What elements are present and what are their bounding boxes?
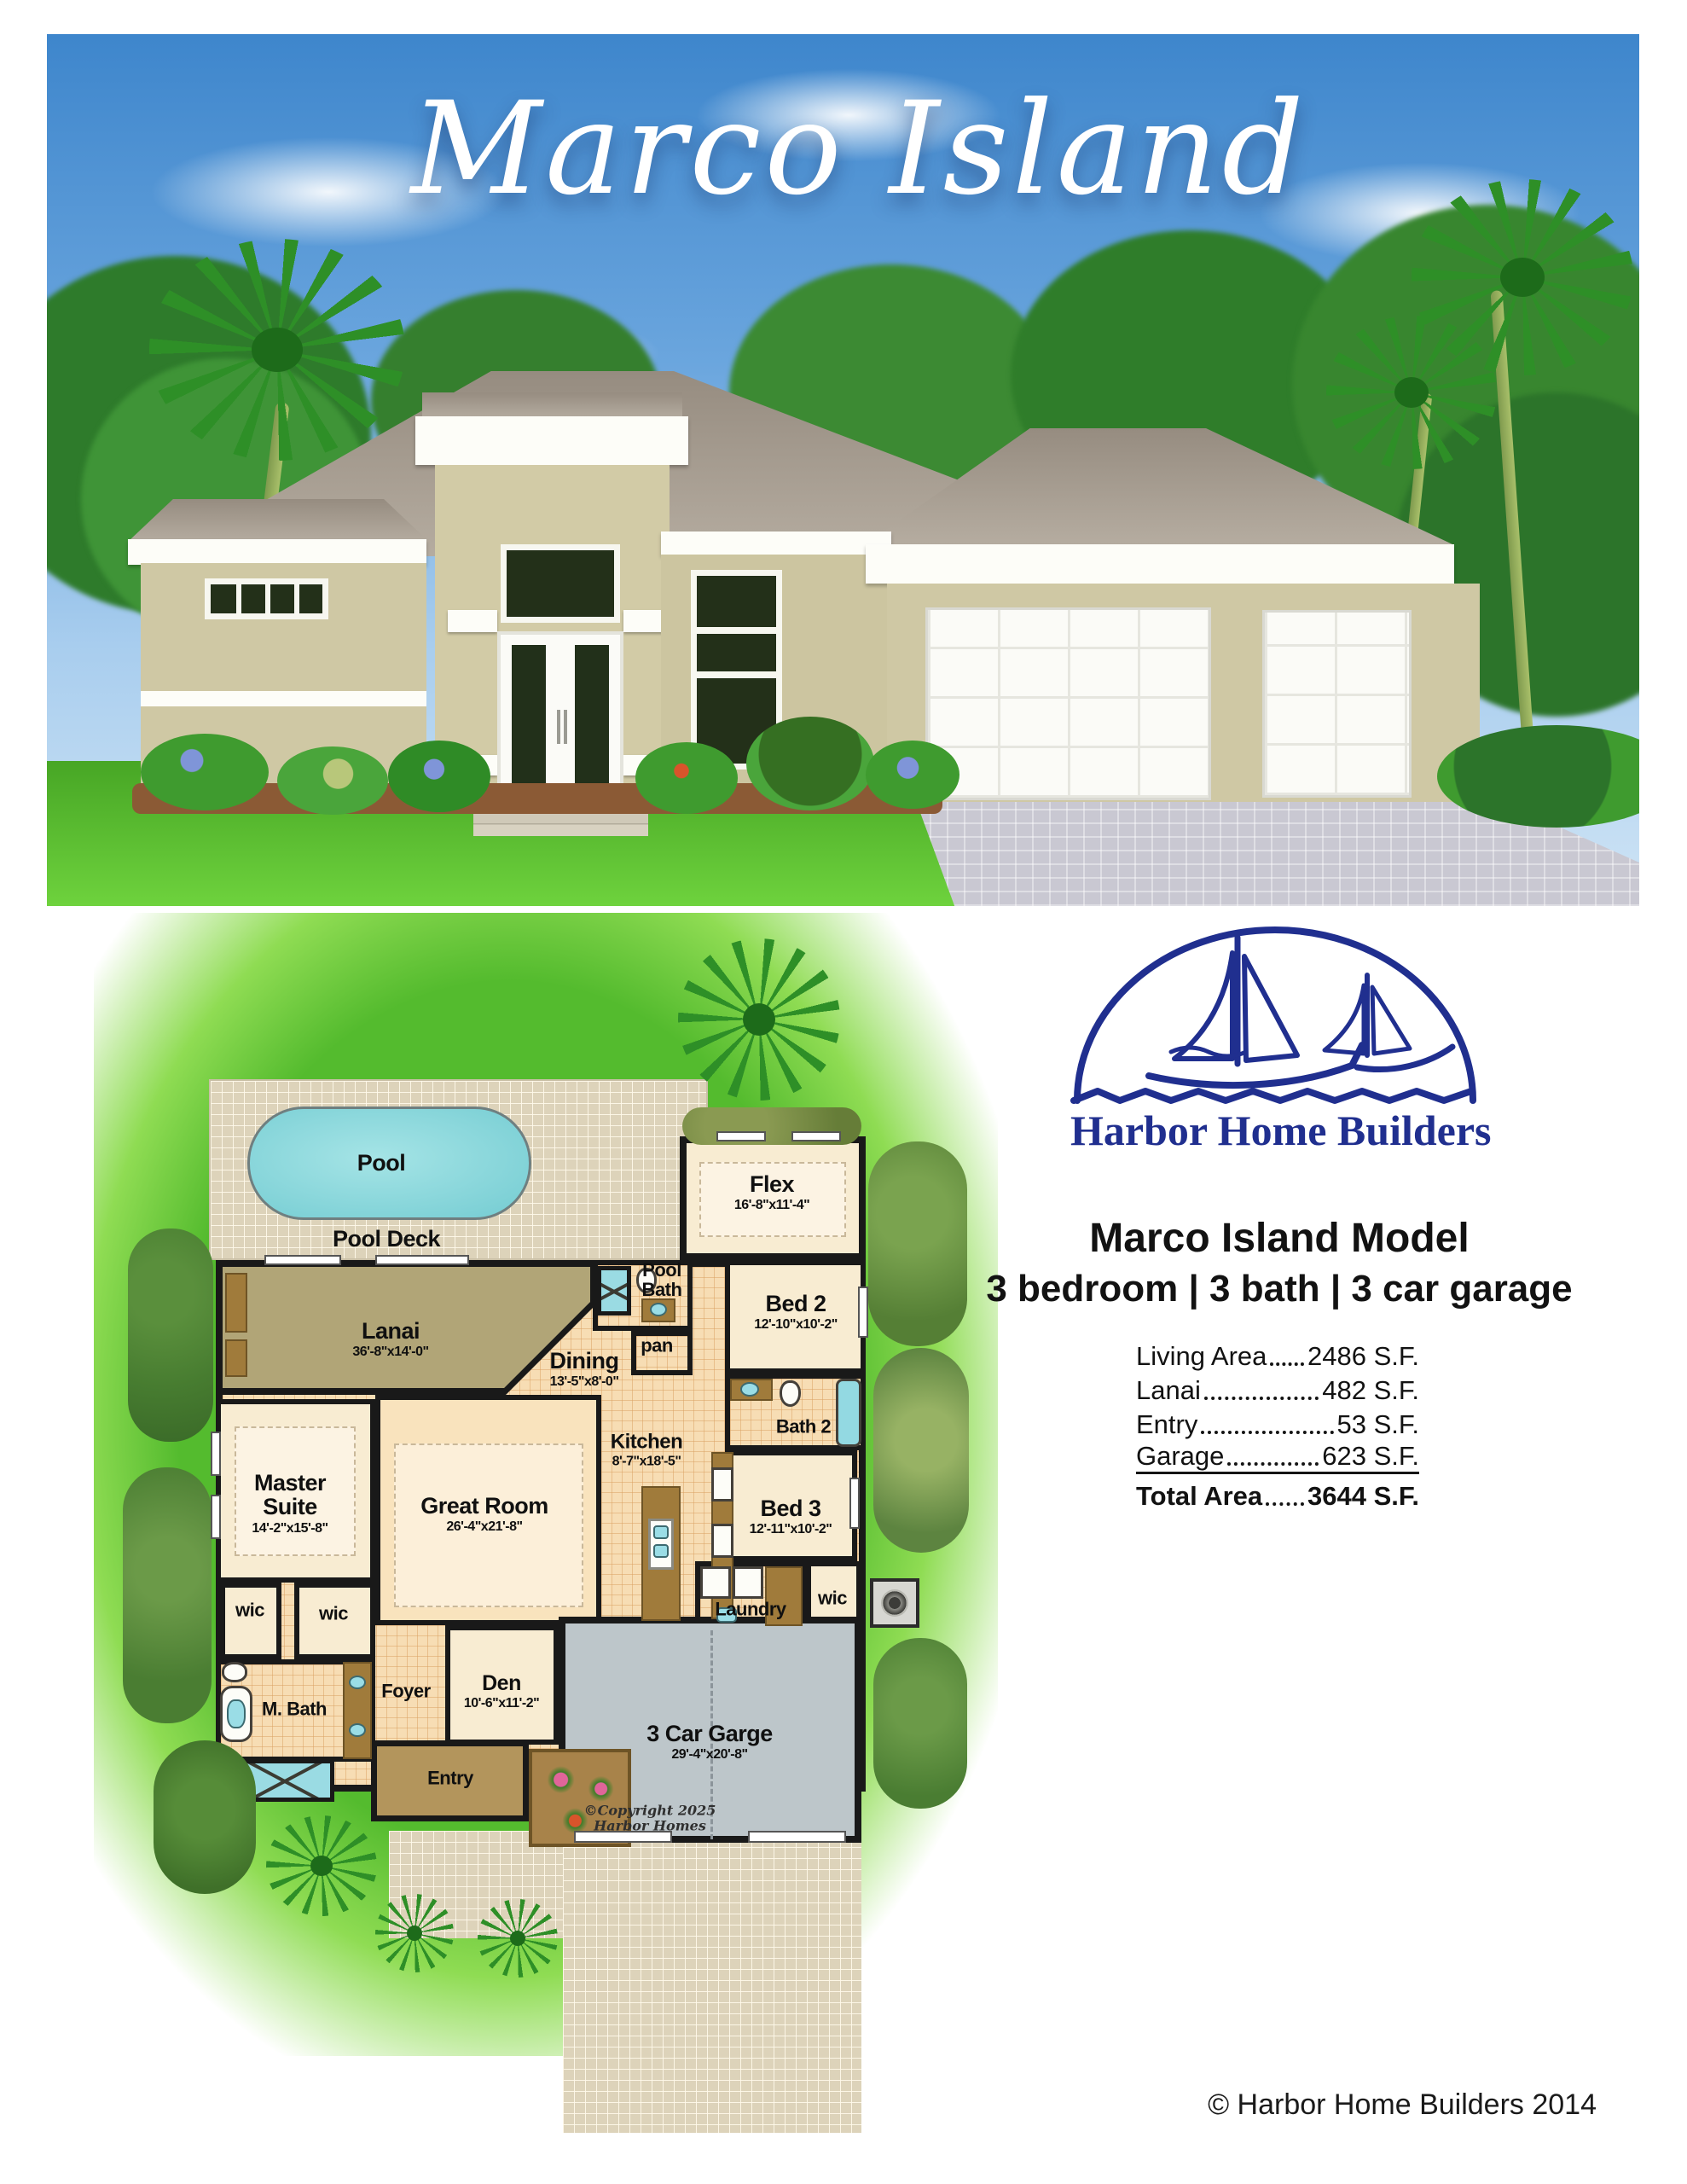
kitchen-sink [653, 1544, 669, 1558]
label-lanai: Lanai36'-8"x14'-0" [352, 1319, 428, 1360]
hedge-left [123, 1467, 212, 1723]
flower-bush [141, 734, 269, 810]
clerestory-window [205, 578, 328, 619]
master-sink1 [349, 1676, 366, 1689]
label-bath2: Bath 2 [776, 1416, 831, 1436]
label-pool: Pool [357, 1151, 406, 1175]
pool-bath-shower [597, 1266, 631, 1316]
area-row-lanai: Lanai482 S.F. [1136, 1372, 1419, 1406]
fascia-trim [128, 539, 426, 565]
bath2-tub [836, 1379, 861, 1447]
fascia-trim [661, 531, 891, 555]
flex-window [791, 1131, 841, 1141]
band-trim [141, 691, 426, 706]
label-den: Den10'-6"x11'-2" [464, 1672, 539, 1711]
kitchen-sink [653, 1525, 669, 1539]
fridge [711, 1467, 733, 1501]
washer [700, 1566, 731, 1599]
label-pool-bath: PoolBath [642, 1260, 682, 1299]
flower-bush [635, 742, 738, 814]
palm-tree [149, 239, 405, 461]
bath2-toilet [780, 1380, 801, 1407]
dot-leader [1270, 1362, 1304, 1366]
flex-window [716, 1131, 766, 1141]
hedge-right [873, 1638, 967, 1809]
master-sink2 [349, 1723, 366, 1737]
area-table: Living Area2486 S.F. Lanai482 S.F. Entry… [1136, 1338, 1419, 1512]
master-window [211, 1495, 221, 1539]
label-entry: Entry [427, 1768, 473, 1787]
hedge-right [868, 1141, 967, 1346]
outdoor-kitchen [225, 1273, 247, 1333]
bed3-window [849, 1478, 860, 1529]
label-pantry: pan [641, 1335, 673, 1355]
label-great-room: Great Room26'-4"x21'-8" [420, 1494, 548, 1535]
flower-bush [866, 741, 959, 809]
bath2-sink [740, 1382, 759, 1397]
tower-roof-cap [422, 392, 682, 418]
hero-rendering: Marco Island [47, 34, 1639, 906]
hedge-left [154, 1740, 256, 1894]
label-bed2: Bed 212'-10"x10'-2" [754, 1292, 838, 1333]
ac-unit [870, 1578, 919, 1628]
label-wic2: wic [319, 1603, 348, 1623]
plan-copyright: ©Copyright 2025Harbor Homes [584, 1804, 716, 1835]
hedge-left [128, 1228, 213, 1442]
master-toilet [222, 1662, 247, 1682]
label-bed3: Bed 312'-11"x10'-2" [750, 1496, 832, 1537]
palm-plan-bottom [375, 1894, 454, 1972]
left-wing-roof [128, 499, 429, 542]
trim-tab [448, 610, 497, 632]
label-wic1: wic [235, 1600, 264, 1619]
label-foyer: Foyer [381, 1681, 430, 1700]
palm-plan-bottom [478, 1899, 558, 1978]
label-dining: Dining13'-5"x8'-0" [550, 1349, 619, 1390]
label-garage: 3 Car Garge29'-4"x20'-8" [646, 1722, 773, 1763]
ac-fan [881, 1589, 908, 1617]
model-specs: 3 bedroom | 3 bath | 3 car garage [981, 1268, 1578, 1310]
door-glass [512, 645, 546, 790]
front-door-unit [497, 631, 623, 800]
model-name: Marco Island Model [1006, 1215, 1552, 1262]
garage-door-double [925, 607, 1211, 800]
bed2-window [858, 1287, 868, 1338]
shrub [746, 717, 874, 810]
label-flex: Flex16'-8"x11'-4" [734, 1172, 809, 1213]
palm-plan-bottom [266, 1815, 377, 1916]
flower-bush [388, 741, 490, 812]
garage-door-plan [748, 1831, 846, 1843]
door-handle [557, 710, 560, 744]
master-window [211, 1432, 221, 1476]
dot-leader [1227, 1462, 1319, 1466]
lanai-slider [375, 1255, 469, 1265]
tub-water [227, 1699, 246, 1728]
range [711, 1524, 733, 1558]
door-handle [564, 710, 567, 744]
door-glass [575, 645, 609, 790]
palm-tree [1326, 316, 1497, 469]
label-pool-deck: Pool Deck [333, 1227, 440, 1251]
pool-bath-sink [650, 1303, 667, 1316]
garage-fascia [866, 544, 1454, 584]
lanai-slider [264, 1255, 341, 1265]
label-wic3: wic [818, 1588, 847, 1607]
label-kitchen: Kitchen8'-7"x18'-5" [611, 1432, 683, 1470]
hero-title: Marco Island [411, 75, 1307, 224]
shrub [277, 746, 388, 815]
garage-door-single [1262, 610, 1412, 798]
label-master: MasterSuite14'-2"x15'-8" [252, 1471, 328, 1536]
dryer [733, 1566, 763, 1599]
label-m-bath: M. Bath [262, 1699, 327, 1718]
sailboat-logo [1070, 926, 1480, 1109]
tower-cornice [415, 416, 688, 465]
area-row-garage: Garage623 S.F. [1136, 1440, 1419, 1474]
plan-driveway [563, 1836, 861, 2133]
hedge-right [873, 1348, 969, 1553]
area-row-entry: Entry53 S.F. [1136, 1406, 1419, 1440]
dot-leader [1266, 1502, 1304, 1506]
label-laundry: Laundry [715, 1599, 786, 1618]
area-row-total: Total Area3644 S.F. [1136, 1474, 1419, 1512]
footer-copyright: © Harbor Home Builders 2014 [1208, 2088, 1597, 2122]
outdoor-cabinet [225, 1339, 247, 1377]
wic1-room [220, 1583, 281, 1659]
dot-leader [1204, 1397, 1319, 1400]
brand-logo-text: Harbor Home Builders [1070, 1106, 1480, 1155]
palm-plan-top [678, 938, 840, 1101]
transom-window [501, 544, 620, 623]
dot-leader [1201, 1431, 1333, 1434]
floor-plan: Pool Pool Deck Lanai36'-8"x14'-0" Flex16… [119, 921, 972, 2184]
area-row-living: Living Area2486 S.F. [1136, 1338, 1419, 1372]
